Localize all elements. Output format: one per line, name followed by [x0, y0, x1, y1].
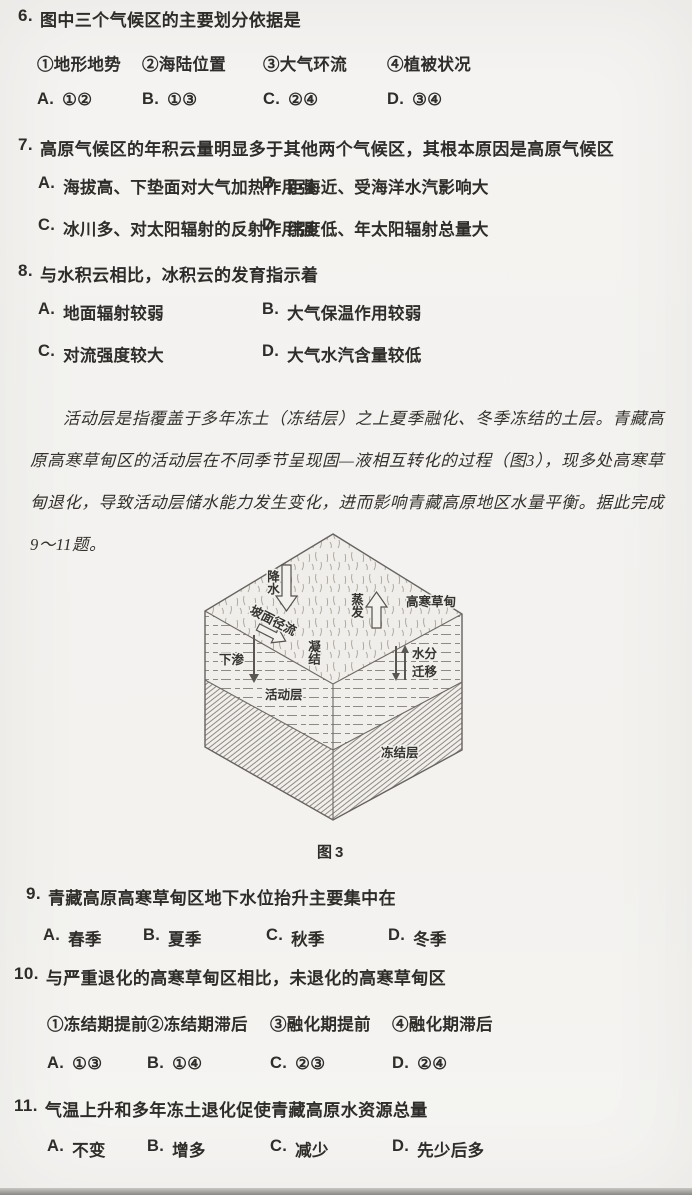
choice-text: ①②	[62, 90, 92, 110]
question-number: 9.	[26, 884, 41, 909]
question-6-choices: A.①② B.①③ C.②④ D.③④	[37, 90, 442, 110]
choice-d: D.纬度低、年太阳辐射总量大	[262, 216, 489, 240]
question-8-stem: 8. 与水积云相比，冰积云的发育指示着	[18, 261, 318, 286]
question-text: 气温上升和多年冻土退化促使青藏高原水资源总量	[45, 1096, 428, 1121]
choice-label: C.	[263, 90, 280, 110]
choice-b: B.大气保温作用较弱	[262, 300, 422, 324]
choice-text: 对流强度较大	[63, 342, 164, 366]
question-6-stem: 6. 图中三个气候区的主要划分依据是	[18, 6, 301, 31]
suboption: ①冻结期提前	[47, 1011, 147, 1035]
choice-text: 冬季	[413, 926, 447, 950]
question-7-stem: 7. 高原气候区的年积云量明显多于其他两个气候区，其根本原因是高原气候区	[18, 135, 614, 160]
block-diagram: 降水 蒸发 高寒草甸 坡面径流 凝结 下渗 水分 迁移 活动层 冻结层 图3	[195, 528, 470, 865]
question-10-choices: A.①③ B.①④ C.②③ D.②④	[47, 1054, 447, 1074]
choice-text: 大气保温作用较弱	[287, 300, 421, 324]
question-text: 与水积云相比，冰积云的发育指示着	[40, 261, 318, 286]
choice-a: A.不变	[47, 1137, 147, 1161]
choice-label: B.	[147, 1054, 164, 1074]
choice-label: C.	[270, 1054, 287, 1074]
choice-text: 夏季	[168, 926, 202, 950]
choice-label: B.	[143, 926, 160, 950]
suboption: ④融化期滞后	[392, 1011, 493, 1035]
suboption: ①地形地势	[37, 51, 142, 75]
choice-b: B.距海近、受海洋水汽影响大	[262, 174, 489, 198]
question-8-choices-cd: C.对流强度较大 D.大气水汽含量较低	[38, 342, 422, 366]
choice-label: B.	[142, 90, 159, 110]
choice-text: 减少	[295, 1137, 329, 1161]
choice-d: D.②④	[392, 1054, 447, 1074]
question-number: 8.	[18, 261, 33, 286]
choice-text: ①③	[167, 90, 197, 110]
question-9-stem: 9. 青藏高原高寒草甸区地下水位抬升主要集中在	[26, 884, 396, 909]
choice-label: A.	[47, 1137, 64, 1161]
question-text: 图中三个气候区的主要划分依据是	[40, 6, 301, 31]
precipitation-label: 降水	[265, 569, 279, 596]
condensation-label: 凝结	[306, 639, 320, 666]
question-11-stem: 11. 气温上升和多年冻土退化促使青藏高原水资源总量	[14, 1096, 428, 1121]
active-layer-label: 活动层	[265, 687, 303, 702]
choice-a: A.地面辐射较弱	[38, 300, 262, 324]
exam-page: 6. 图中三个气候区的主要划分依据是 ①地形地势 ②海陆位置 ③大气环流 ④植被…	[0, 0, 692, 1195]
choice-a: A.①②	[37, 90, 142, 110]
question-8-choices-ab: A.地面辐射较弱 B.大气保温作用较弱	[38, 300, 422, 324]
choice-label: D.	[392, 1054, 409, 1074]
question-6-suboptions: ①地形地势 ②海陆位置 ③大气环流 ④植被状况	[37, 51, 471, 75]
question-7-choices-ab: A.海拔高、下垫面对大气加热作用强 B.距海近、受海洋水汽影响大	[38, 174, 489, 198]
choice-d: D.③④	[387, 90, 442, 110]
choice-c: C.减少	[270, 1137, 392, 1161]
choice-b: B.增多	[147, 1137, 270, 1161]
choice-c: C.②④	[263, 90, 387, 110]
choice-label: D.	[392, 1137, 409, 1161]
choice-label: A.	[38, 174, 55, 198]
choice-c: C.②③	[270, 1054, 392, 1074]
choice-b: B.①④	[147, 1054, 270, 1074]
suboption: ③融化期提前	[270, 1011, 392, 1035]
choice-label: B.	[262, 174, 279, 198]
question-number: 7.	[18, 135, 33, 160]
choice-text: 秋季	[291, 926, 325, 950]
choice-text: 地面辐射较弱	[63, 300, 164, 324]
choice-label: A.	[37, 90, 54, 110]
choice-b: B.夏季	[143, 926, 266, 950]
choice-label: D.	[262, 342, 279, 366]
question-7-choices-cd: C.冰川多、对太阳辐射的反射作用强 D.纬度低、年太阳辐射总量大	[38, 216, 489, 240]
choice-text: 大气水汽含量较低	[287, 342, 421, 366]
choice-text: 不变	[72, 1137, 106, 1161]
choice-text: ①③	[72, 1054, 102, 1074]
suboption: ②海陆位置	[142, 51, 263, 75]
choice-c: C.秋季	[266, 926, 388, 950]
choice-text: ②④	[288, 90, 318, 110]
choice-label: B.	[147, 1137, 164, 1161]
choice-text: ②③	[295, 1054, 325, 1074]
meadow-label: 高寒草甸	[406, 594, 456, 609]
question-text: 青藏高原高寒草甸区地下水位抬升主要集中在	[48, 884, 396, 909]
question-text: 与严重退化的高寒草甸区相比，未退化的高寒草甸区	[46, 964, 446, 989]
frozen-layer-label: 冻结层	[381, 745, 419, 760]
choice-label: C.	[38, 342, 55, 366]
suboption: ②冻结期滞后	[147, 1011, 270, 1035]
choice-label: B.	[262, 300, 279, 324]
choice-text: ②④	[417, 1054, 447, 1074]
choice-text: 距海近、受海洋水汽影响大	[287, 174, 489, 198]
suboption: ③大气环流	[263, 51, 387, 75]
choice-text: 增多	[172, 1137, 206, 1161]
choice-label: C.	[266, 926, 283, 950]
choice-label: A.	[43, 926, 60, 950]
choice-d: D.冬季	[388, 926, 447, 950]
question-number: 11.	[14, 1096, 38, 1121]
choice-text: 春季	[68, 926, 102, 950]
choice-a: A.海拔高、下垫面对大气加热作用强	[38, 174, 262, 198]
choice-d: D.大气水汽含量较低	[262, 342, 422, 366]
choice-label: A.	[47, 1054, 64, 1074]
question-10-suboptions: ①冻结期提前 ②冻结期滞后 ③融化期提前 ④融化期滞后	[47, 1011, 493, 1035]
choice-b: B.①③	[142, 90, 263, 110]
choice-label: D.	[388, 926, 405, 950]
choice-text: 纬度低、年太阳辐射总量大	[287, 216, 489, 240]
choice-a: A.①③	[47, 1054, 147, 1074]
question-9-choices: A.春季 B.夏季 C.秋季 D.冬季	[43, 926, 447, 950]
choice-c: C.冰川多、对太阳辐射的反射作用强	[38, 216, 262, 240]
choice-label: C.	[270, 1137, 287, 1161]
scan-bottom-edge	[0, 1188, 692, 1195]
question-11-choices: A.不变 B.增多 C.减少 D.先少后多	[47, 1137, 484, 1161]
question-number: 10.	[14, 964, 39, 989]
suboption: ④植被状况	[387, 51, 471, 75]
choice-text: ①④	[172, 1054, 202, 1074]
choice-d: D.先少后多	[392, 1137, 484, 1161]
choice-label: A.	[38, 300, 55, 324]
question-number: 6.	[18, 6, 33, 31]
choice-label: D.	[262, 216, 279, 240]
choice-c: C.对流强度较大	[38, 342, 262, 366]
choice-text: 先少后多	[417, 1137, 484, 1161]
moisture-migration-label-line1: 水分	[412, 646, 438, 661]
question-text: 高原气候区的年积云量明显多于其他两个气候区，其根本原因是高原气候区	[40, 135, 614, 160]
figure-caption: 图3	[317, 844, 346, 861]
moisture-migration-label-line2: 迁移	[412, 664, 438, 679]
choice-text: ③④	[412, 90, 442, 110]
choice-label: C.	[38, 216, 55, 240]
infiltration-label: 下渗	[219, 652, 245, 667]
choice-a: A.春季	[43, 926, 143, 950]
evaporation-label: 蒸发	[349, 592, 364, 619]
choice-label: D.	[387, 90, 404, 110]
question-10-stem: 10. 与严重退化的高寒草甸区相比，未退化的高寒草甸区	[14, 964, 446, 989]
